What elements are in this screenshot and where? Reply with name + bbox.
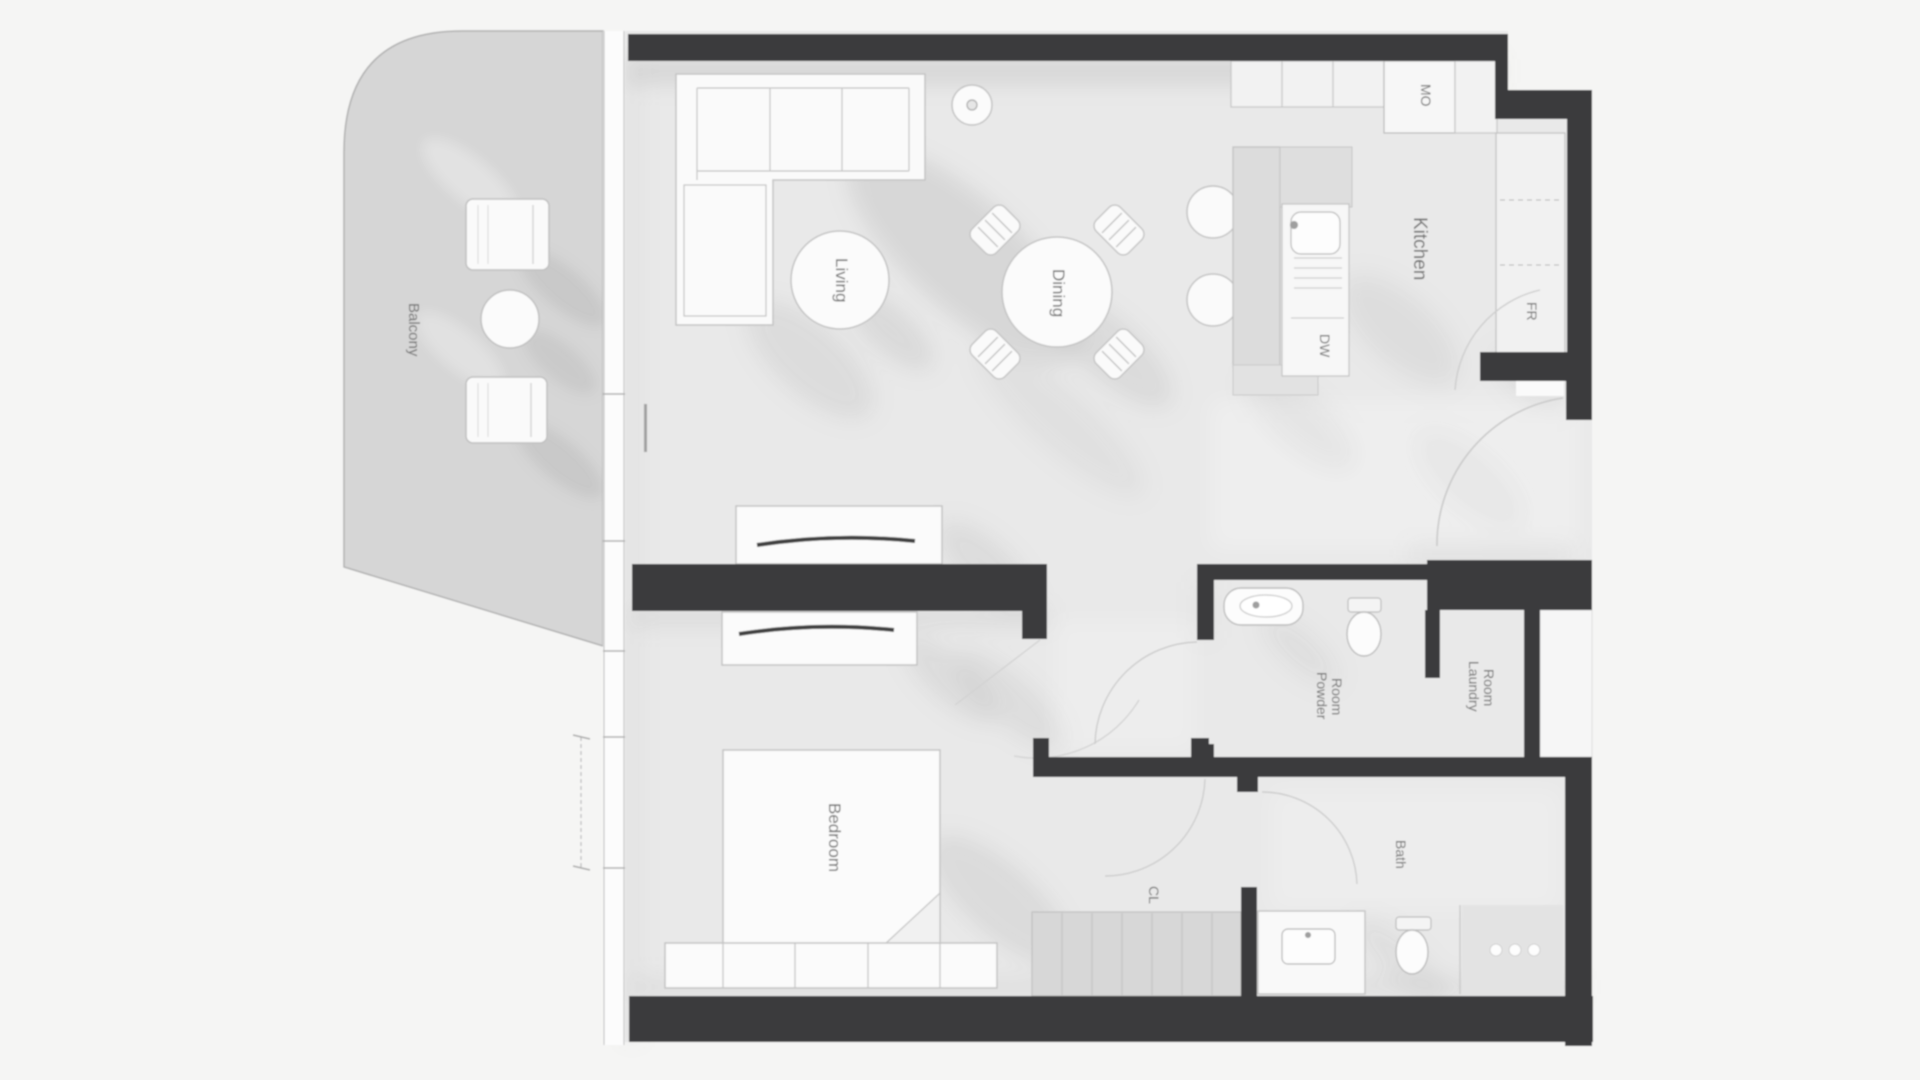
svg-text:Room: Room bbox=[1481, 669, 1497, 706]
svg-text:Bath: Bath bbox=[1393, 840, 1409, 869]
svg-text:Bedroom: Bedroom bbox=[825, 803, 844, 872]
svg-text:Powder: Powder bbox=[1314, 672, 1330, 720]
svg-text:Kitchen: Kitchen bbox=[1409, 217, 1430, 280]
svg-text:Living: Living bbox=[832, 258, 851, 302]
svg-text:DW: DW bbox=[1317, 334, 1333, 358]
svg-text:Room: Room bbox=[1329, 678, 1345, 715]
svg-text:MO: MO bbox=[1418, 84, 1434, 107]
svg-text:CL: CL bbox=[1146, 886, 1162, 904]
svg-text:Dining: Dining bbox=[1049, 269, 1068, 317]
svg-text:FR: FR bbox=[1524, 302, 1540, 321]
svg-text:Laundry: Laundry bbox=[1466, 661, 1482, 712]
svg-text:Balcony: Balcony bbox=[405, 303, 422, 357]
